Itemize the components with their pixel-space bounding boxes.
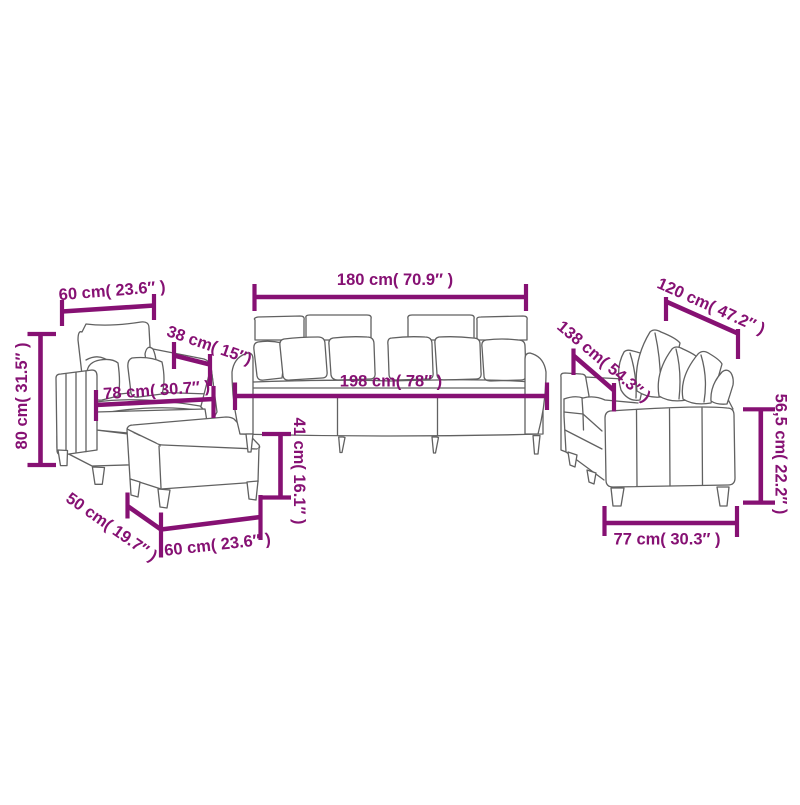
svg-text:41 cm( 16.1″ ): 41 cm( 16.1″ ) <box>290 418 308 525</box>
svg-text:198 cm( 78″ ): 198 cm( 78″ ) <box>340 373 442 391</box>
svg-text:56,5 cm( 22.2″ ): 56,5 cm( 22.2″ ) <box>772 394 790 515</box>
svg-text:77 cm( 30.3″ ): 77 cm( 30.3″ ) <box>614 531 721 549</box>
svg-text:80 cm( 31.5″ ): 80 cm( 31.5″ ) <box>13 343 31 450</box>
svg-text:180 cm( 70.9″ ): 180 cm( 70.9″ ) <box>337 271 453 289</box>
